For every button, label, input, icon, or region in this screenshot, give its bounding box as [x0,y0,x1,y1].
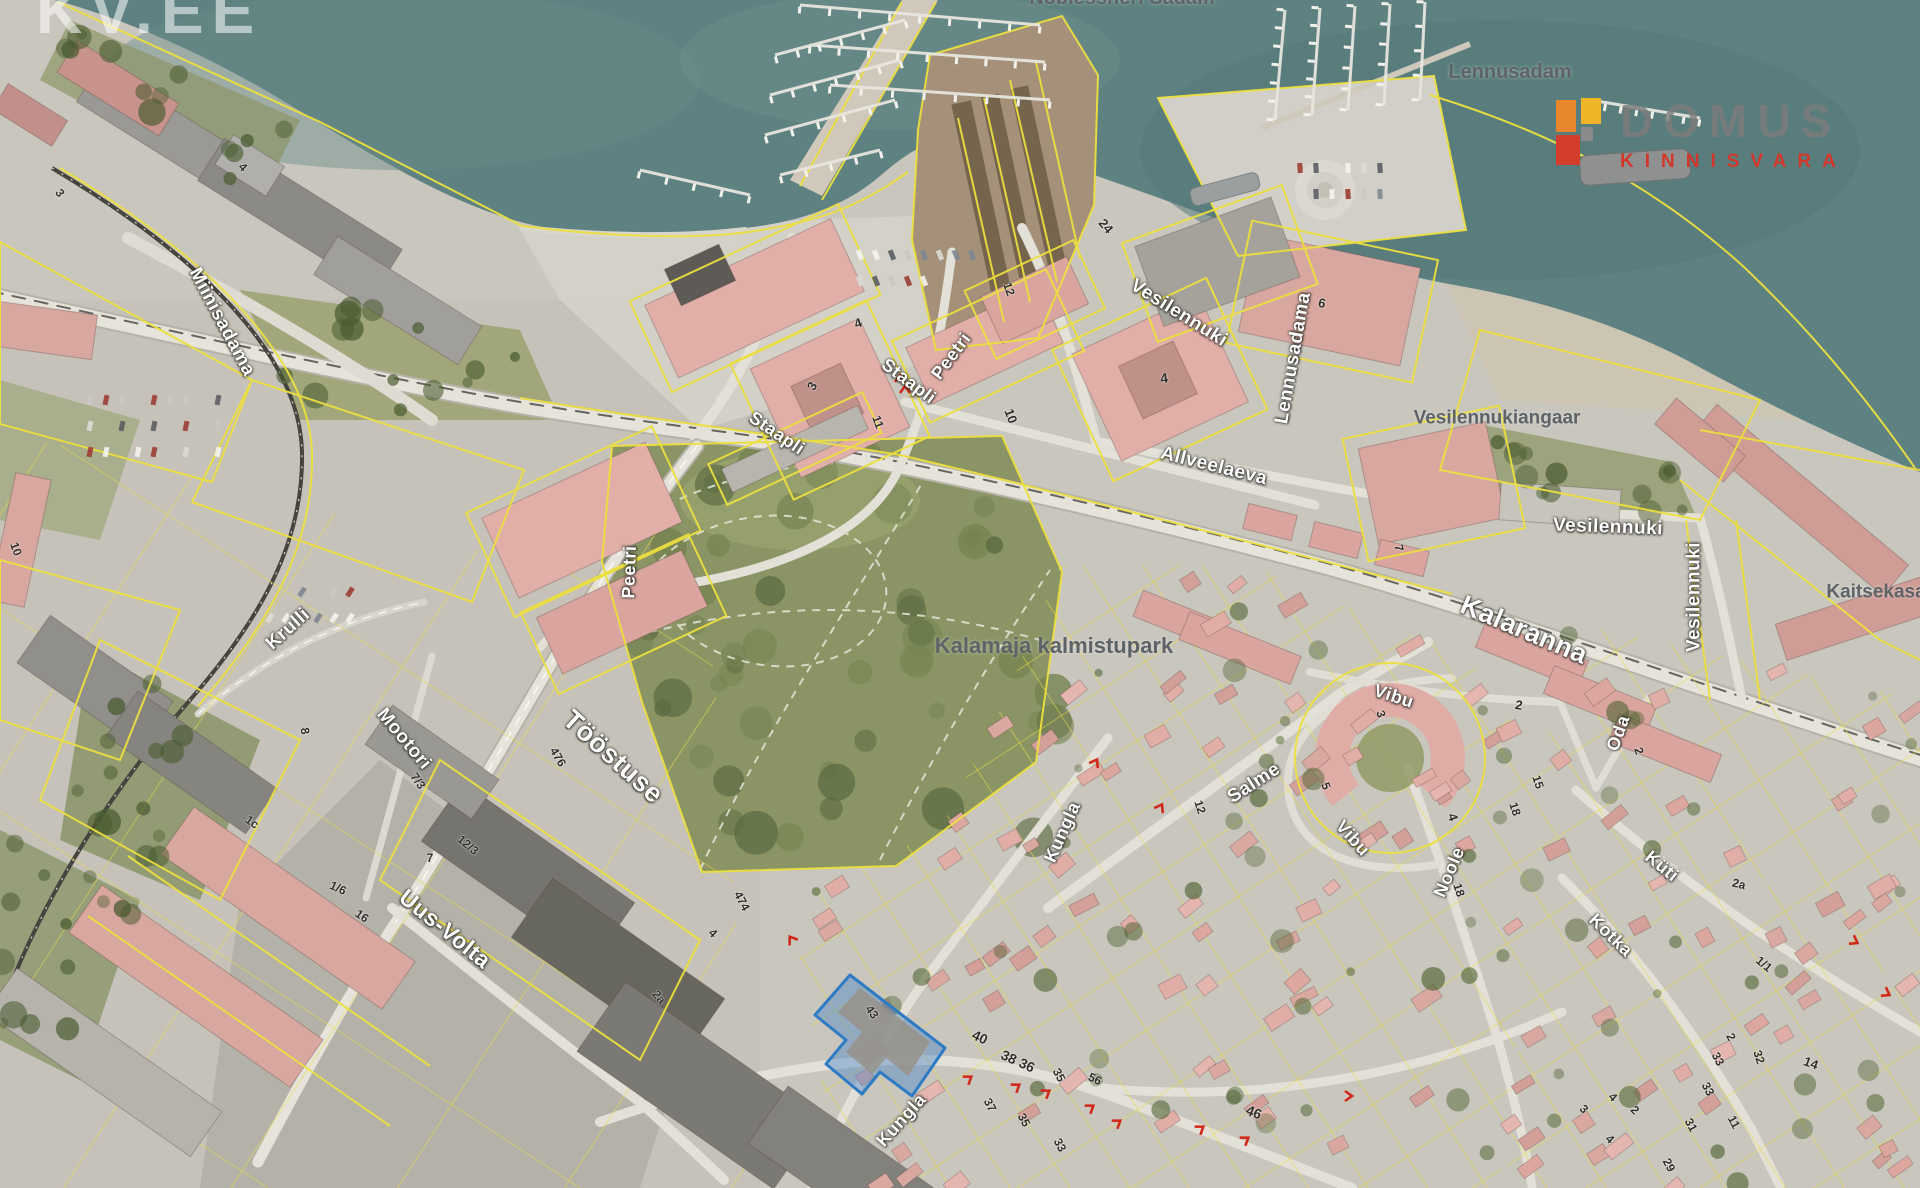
satellite-canvas[interactable] [0,0,1920,1188]
map-viewport[interactable]: Miinisadama Krulli Mootori Tööstuse Uus-… [0,0,1920,1188]
